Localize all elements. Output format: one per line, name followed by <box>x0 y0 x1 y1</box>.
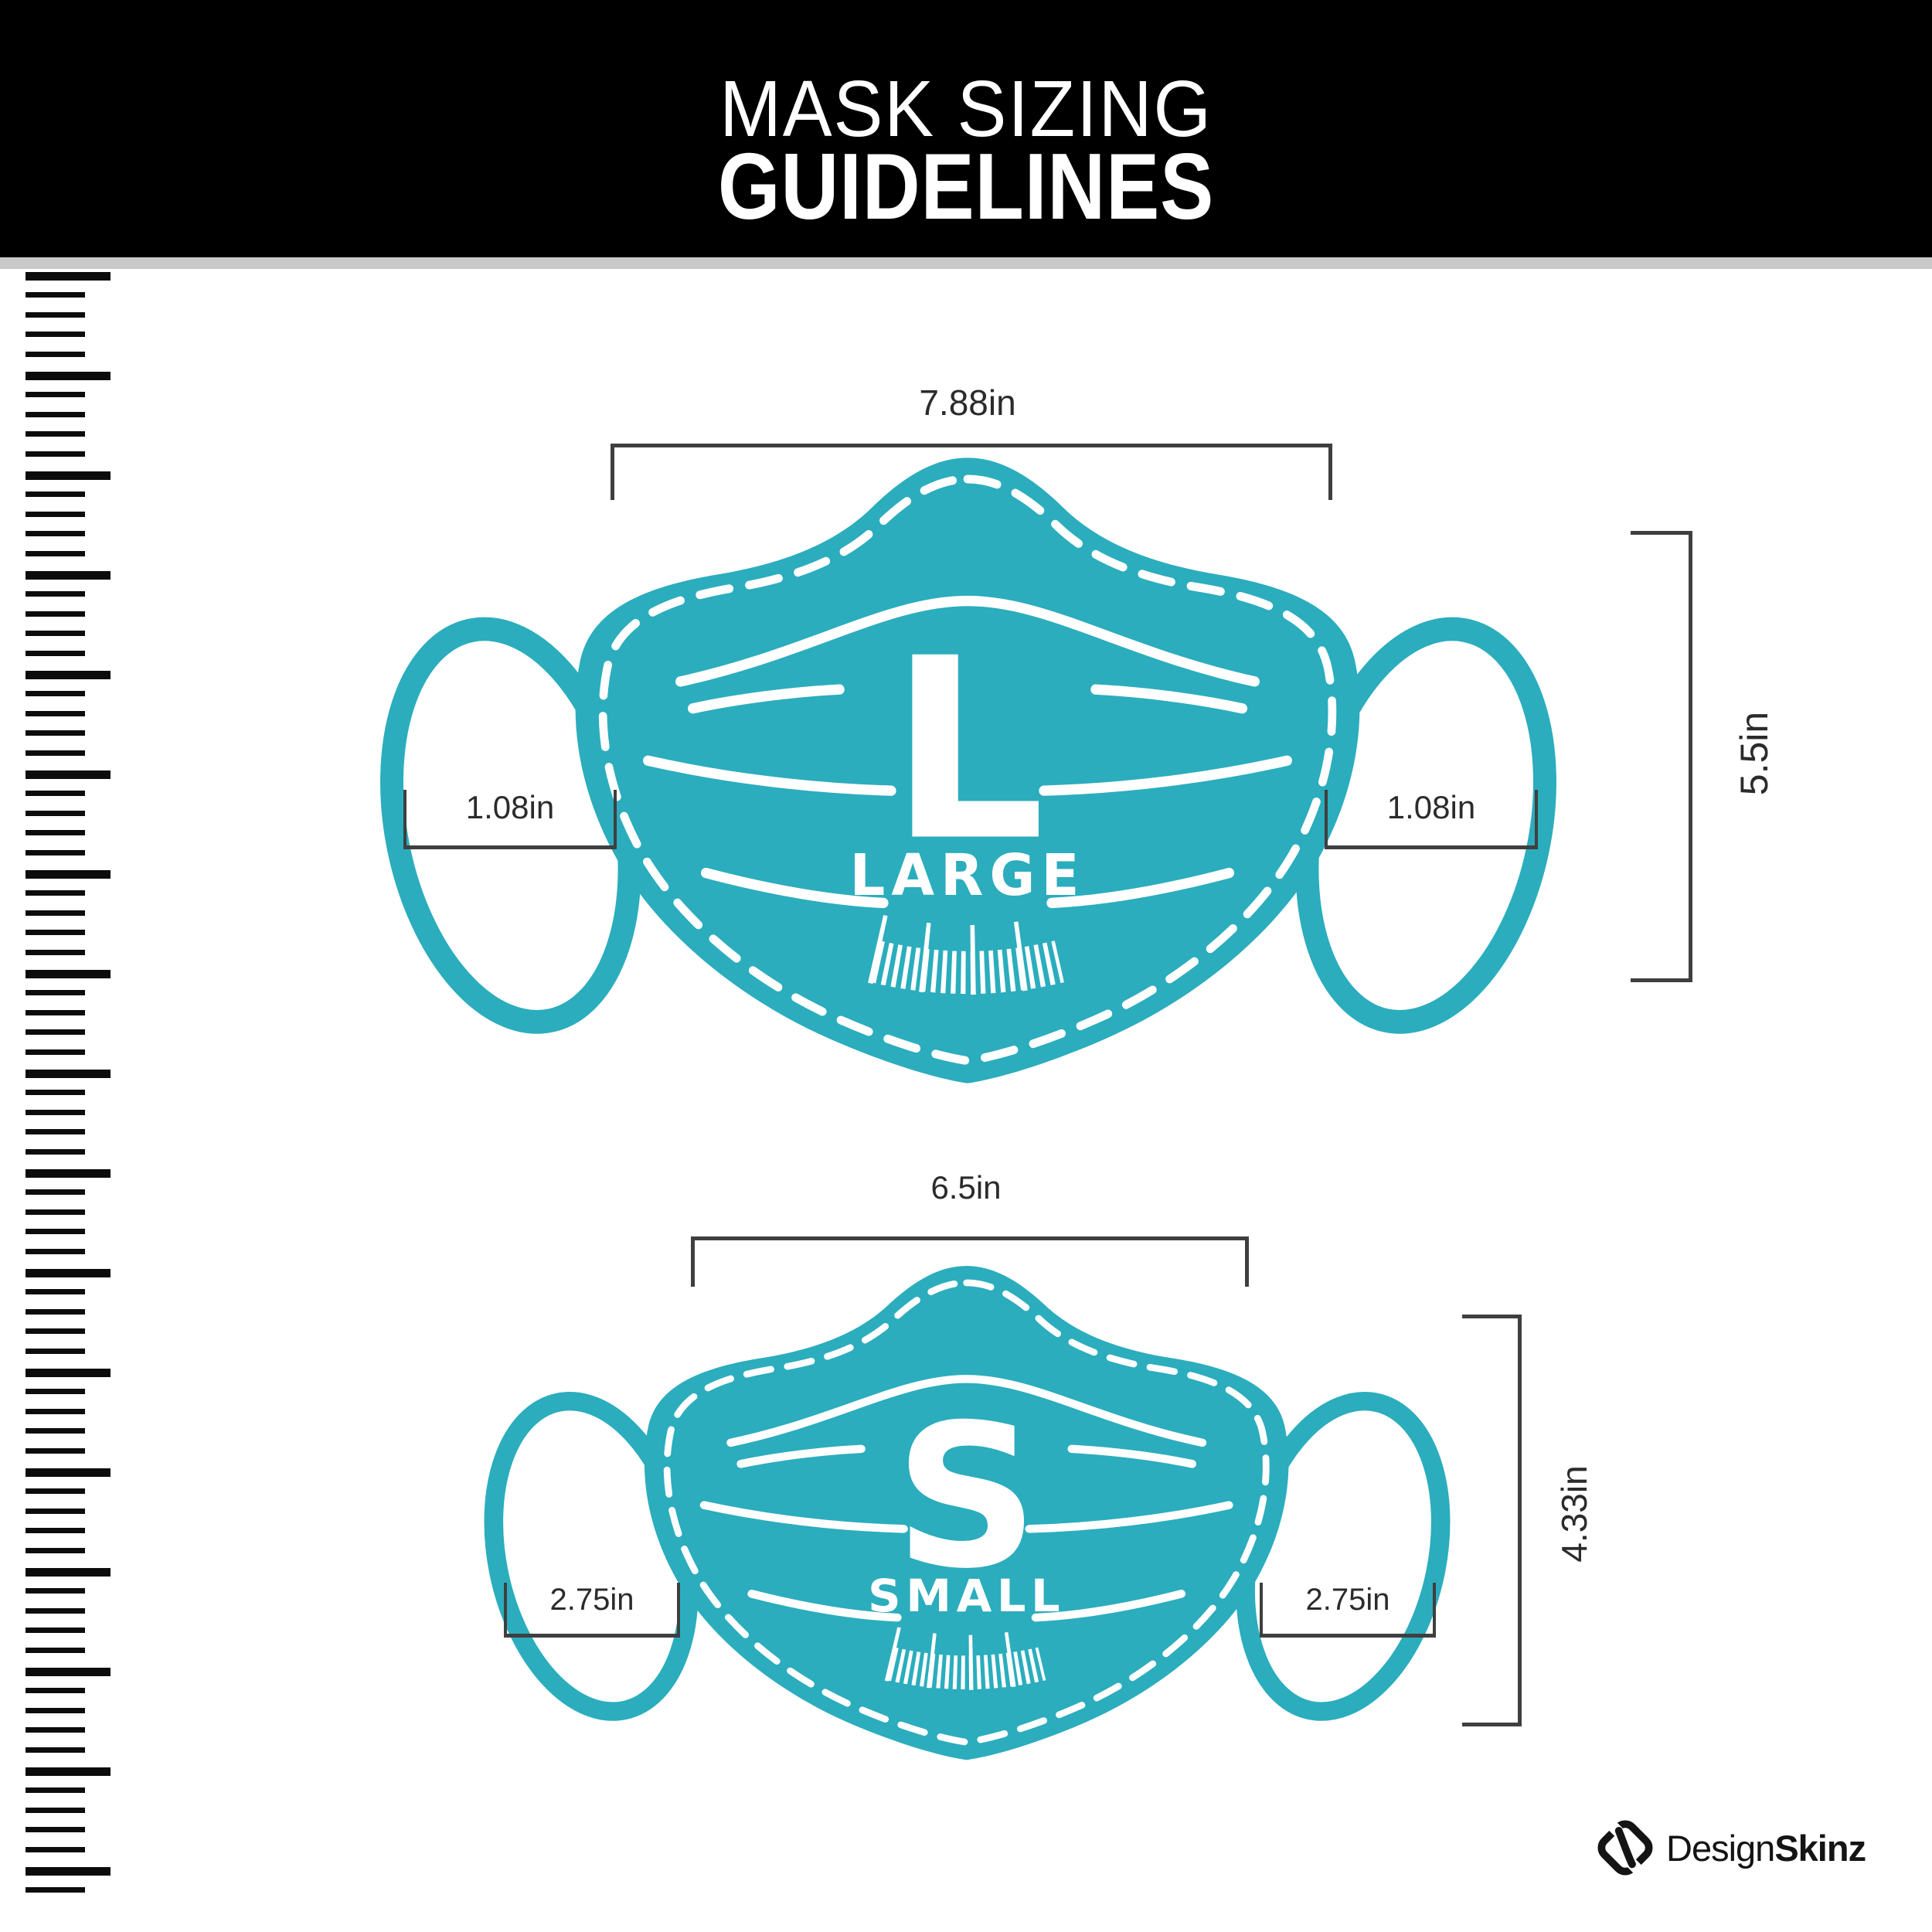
small-right-ear-label: 2.75in <box>1306 1584 1390 1615</box>
ruler-short-tick <box>26 631 85 636</box>
ruler-short-tick <box>26 830 85 835</box>
ruler-short-tick <box>26 1528 85 1533</box>
ruler-short-tick <box>26 1029 85 1035</box>
ruler-short-tick <box>26 1129 85 1134</box>
ruler-short-tick <box>26 1289 85 1294</box>
ruler-short-tick <box>26 1229 85 1234</box>
ruler-short-tick <box>26 292 85 298</box>
ruler-short-tick <box>26 392 85 397</box>
ruler-graphic <box>26 272 111 1903</box>
ruler-short-tick <box>26 1509 85 1514</box>
brand-name-bold: Skinz <box>1774 1828 1866 1869</box>
ruler-short-tick <box>26 910 85 916</box>
ruler-short-tick <box>26 412 85 417</box>
ruler-short-tick <box>26 352 85 357</box>
small-height-label: 4.33in <box>1556 1456 1592 1572</box>
ruler-long-tick <box>26 1867 111 1876</box>
ruler-short-tick <box>26 312 85 318</box>
ruler-long-tick <box>26 970 111 978</box>
small-left-ear-bracket: 2.75in <box>504 1583 680 1638</box>
ruler-short-tick <box>26 750 85 756</box>
ruler-short-tick <box>26 1409 85 1414</box>
small-mask-illustration: S SMALL <box>482 1257 1452 1794</box>
ruler-short-tick <box>26 791 85 796</box>
large-left-ear-bracket: 1.08in <box>403 790 617 849</box>
ruler-short-tick <box>26 531 85 536</box>
ruler-long-tick <box>26 671 111 679</box>
ruler-short-tick <box>26 651 85 656</box>
mask-sizing-infographic: MASK SIZING GUIDELINES <box>0 0 1932 1932</box>
ruler-short-tick <box>26 1448 85 1454</box>
ruler-long-tick <box>26 870 111 879</box>
ruler-long-tick <box>26 471 111 480</box>
brand-name: DesignSkinz <box>1666 1827 1866 1869</box>
ruler-short-tick <box>26 1328 85 1334</box>
large-height-bracket <box>1631 531 1692 982</box>
small-left-ear-label: 2.75in <box>550 1584 634 1615</box>
ruler-short-tick <box>26 1149 85 1155</box>
ruler-short-tick <box>26 451 85 457</box>
large-right-ear-bracket: 1.08in <box>1325 790 1538 849</box>
large-left-ear-label: 1.08in <box>466 791 554 824</box>
ruler-short-tick <box>26 1608 85 1614</box>
large-mask-illustration: L LARGE <box>378 446 1559 1126</box>
ruler-short-tick <box>26 930 85 935</box>
ruler-short-tick <box>26 1090 85 1095</box>
ruler-short-tick <box>26 1389 85 1394</box>
large-right-ear-label: 1.08in <box>1387 791 1475 824</box>
ruler-long-tick <box>26 1070 111 1078</box>
ruler-short-tick <box>26 492 85 497</box>
divider-strip <box>0 257 1932 269</box>
large-mask-size-word: LARGE <box>850 842 1086 909</box>
ruler-long-tick <box>26 1468 111 1477</box>
ruler-long-tick <box>26 1568 111 1577</box>
designskinz-logo-icon <box>1594 1816 1657 1879</box>
ruler-short-tick <box>26 551 85 556</box>
page-subtitle: GUIDELINES <box>145 139 1787 233</box>
ruler-long-tick <box>26 1767 111 1776</box>
ruler-long-tick <box>26 571 111 580</box>
ruler-long-tick <box>26 272 111 281</box>
ruler-short-tick <box>26 711 85 716</box>
ruler-short-tick <box>26 850 85 855</box>
ruler-short-tick <box>26 512 85 517</box>
ruler-short-tick <box>26 1708 85 1713</box>
ruler-short-tick <box>26 1648 85 1653</box>
brand-logo: DesignSkinz <box>1594 1816 1866 1879</box>
large-width-bracket <box>611 444 1332 500</box>
header-banner: MASK SIZING GUIDELINES <box>0 0 1932 257</box>
ruler-short-tick <box>26 1628 85 1633</box>
ruler-short-tick <box>26 890 85 896</box>
ruler-short-tick <box>26 730 85 736</box>
ruler-short-tick <box>26 611 85 617</box>
ruler-long-tick <box>26 1169 111 1178</box>
ruler-short-tick <box>26 1808 85 1813</box>
ruler-short-tick <box>26 1588 85 1594</box>
ruler-short-tick <box>26 1747 85 1753</box>
ruler-short-tick <box>26 1049 85 1055</box>
ruler-short-tick <box>26 691 85 696</box>
ruler-short-tick <box>26 1309 85 1315</box>
ruler-short-tick <box>26 1010 85 1015</box>
ruler-short-tick <box>26 1110 85 1115</box>
ruler-long-tick <box>26 1269 111 1277</box>
ruler-short-tick <box>26 990 85 995</box>
ruler-short-tick <box>26 1847 85 1852</box>
ruler-short-tick <box>26 332 85 337</box>
ruler-short-tick <box>26 1488 85 1494</box>
small-mask-size-word: SMALL <box>868 1570 1065 1621</box>
ruler-short-tick <box>26 811 85 816</box>
brand-name-regular: Design <box>1666 1828 1774 1869</box>
ruler-short-tick <box>26 1688 85 1693</box>
ruler-short-tick <box>26 1189 85 1195</box>
ruler-short-tick <box>26 1887 85 1893</box>
ruler-short-tick <box>26 1428 85 1434</box>
small-right-ear-bracket: 2.75in <box>1260 1583 1436 1638</box>
small-width-label: 6.5in <box>889 1172 1043 1204</box>
large-width-label: 7.88in <box>890 385 1045 420</box>
small-height-bracket <box>1462 1315 1522 1726</box>
ruler-long-tick <box>26 770 111 779</box>
large-height-label: 5.5in <box>1735 699 1774 808</box>
ruler-short-tick <box>26 1727 85 1733</box>
ruler-short-tick <box>26 1548 85 1553</box>
ruler-short-tick <box>26 1827 85 1832</box>
ruler-short-tick <box>26 431 85 437</box>
ruler-long-tick <box>26 372 111 380</box>
ruler-short-tick <box>26 1787 85 1793</box>
small-width-bracket <box>691 1236 1249 1287</box>
ruler-short-tick <box>26 950 85 955</box>
ruler-long-tick <box>26 1668 111 1676</box>
ruler-short-tick <box>26 1349 85 1354</box>
ruler-short-tick <box>26 591 85 597</box>
ruler-long-tick <box>26 1369 111 1377</box>
ruler-short-tick <box>26 1249 85 1254</box>
ruler-short-tick <box>26 1209 85 1215</box>
